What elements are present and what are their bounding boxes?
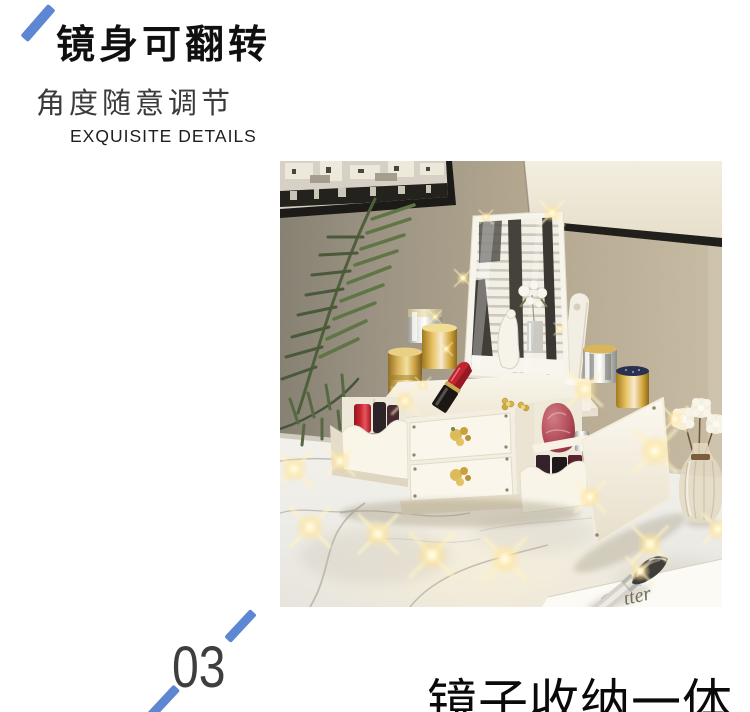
section-number: 03 [172,634,226,701]
next-section-title: 镜子收纳一体 [427,663,733,712]
promo-page: 镜身可翻转 角度随意调节 EXQUISITE DETAILS [0,0,750,712]
feature-title: 镜身可翻转 [56,14,271,70]
flip-mirror [460,211,580,383]
feature-subtitle: 角度随意调节 [36,80,234,122]
slash-icon [20,4,55,42]
slash-icon [224,609,256,643]
product-photo: tter [280,161,722,607]
feature-caption-en: EXQUISITE DETAILS [70,126,257,147]
